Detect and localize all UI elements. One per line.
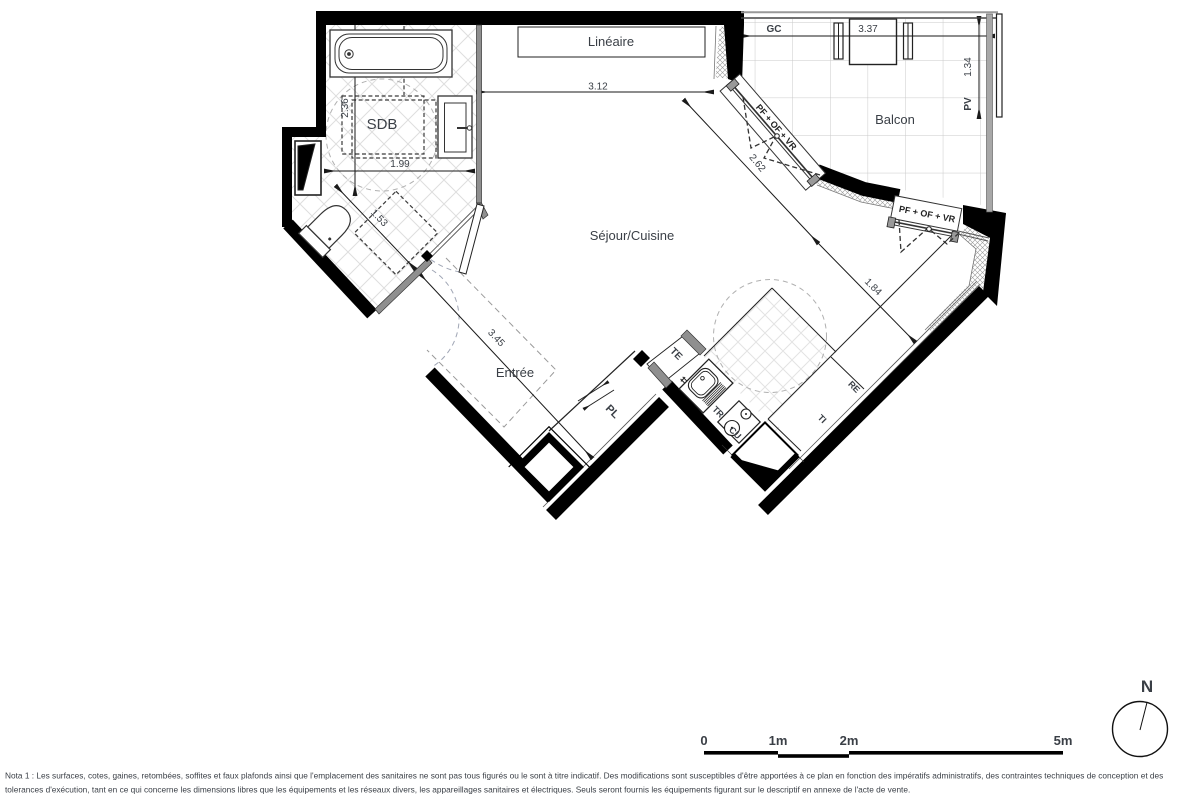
svg-text:1.99: 1.99 [390, 159, 410, 170]
svg-text:RE: RE [846, 379, 862, 395]
svg-text:1.34: 1.34 [963, 57, 974, 77]
svg-text:PL: PL [603, 403, 622, 422]
svg-text:3.12: 3.12 [588, 82, 608, 93]
svg-text:1.84: 1.84 [862, 276, 884, 298]
svg-text:Entrée: Entrée [496, 365, 534, 380]
svg-text:GC: GC [767, 24, 782, 35]
svg-text:5m: 5m [1054, 733, 1073, 748]
svg-text:2m: 2m [840, 733, 859, 748]
svg-text:tolerances d'exécution, tant e: tolerances d'exécution, tant en ce qui c… [5, 785, 910, 795]
svg-text:3.37: 3.37 [858, 24, 878, 35]
svg-text:Linéaire: Linéaire [588, 34, 634, 49]
svg-text:Nota 1 : Les surfaces, cotes,: Nota 1 : Les surfaces, cotes, gaines, re… [5, 771, 1163, 781]
svg-text:TI: TI [816, 413, 829, 426]
svg-text:SDB: SDB [367, 116, 398, 133]
svg-text:Balcon: Balcon [875, 112, 915, 127]
svg-text:PV: PV [963, 97, 974, 111]
svg-text:2.62: 2.62 [746, 152, 767, 174]
svg-text:3.45: 3.45 [485, 327, 507, 349]
svg-text:2.36: 2.36 [340, 98, 351, 118]
svg-text:0: 0 [700, 733, 707, 748]
svg-text:1m: 1m [769, 733, 788, 748]
svg-text:N: N [1141, 677, 1153, 696]
svg-text:Séjour/Cuisine: Séjour/Cuisine [590, 228, 675, 243]
